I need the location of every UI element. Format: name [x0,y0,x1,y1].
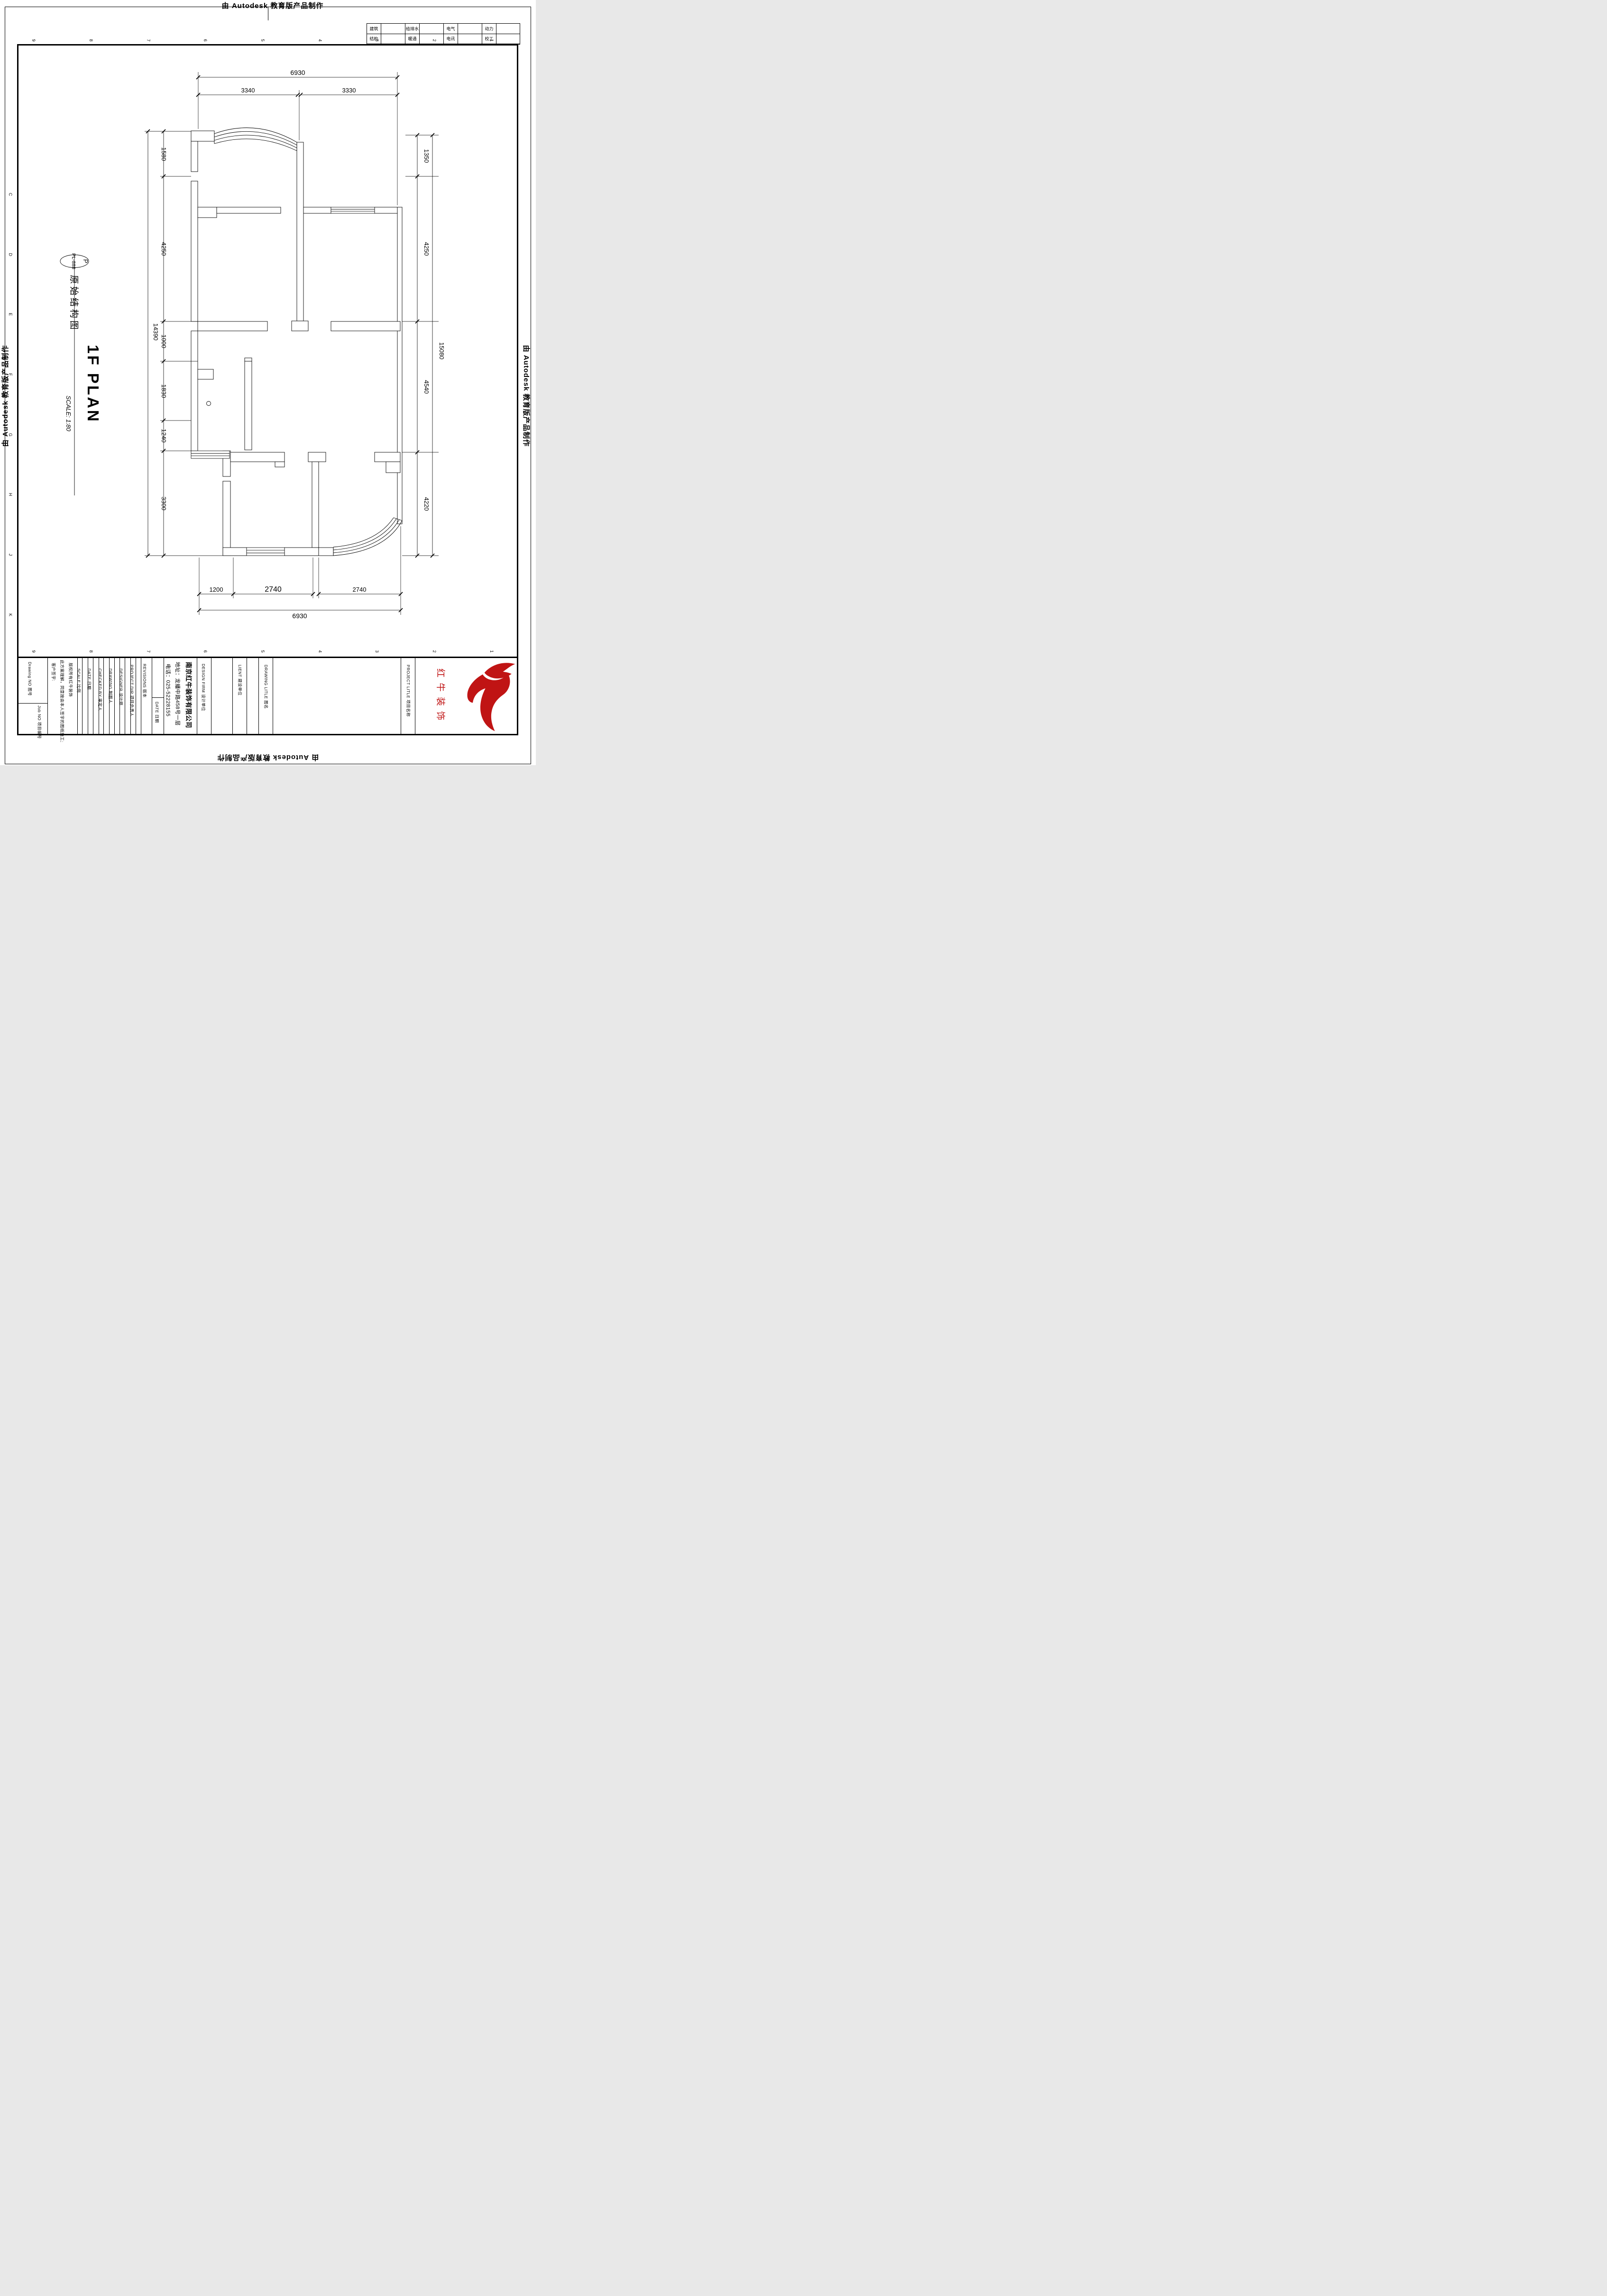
floor-plan-canvas: 6930 3340 3330 1200 2740 2740 6930 1580 … [0,0,536,765]
bull-body [467,674,510,732]
dim-label: 4540 [423,380,430,394]
tb-subdivider [18,703,47,704]
tb-divider [232,658,233,735]
plumbing-symbol [207,402,211,406]
dim-ticks [146,75,434,612]
tb-field-label-scale: SCALE 比例 [76,668,82,693]
dim-label: 4250 [423,242,430,256]
tb-field-label-date: DATE 日期 [86,668,92,690]
bay-arc [214,128,297,142]
window [331,207,375,213]
tb-client-label: LIENT 建设单位 [237,665,243,695]
tb-agreement-text: 此方案理解，同意按由本人签字的图纸施工; [59,660,65,742]
tb-divider [197,658,197,735]
wall-interior-vertical [312,462,319,548]
tb-job-no-label: Job NO 项目编号 [37,705,42,739]
wall-interior-horizontal [375,452,400,462]
tb-divider [401,658,401,735]
dim-label: 1000 [160,335,167,348]
drawing-sheet: 由 Autodesk 教育版产品制作 由 Autodesk 教育版产品制作 由 … [0,0,536,765]
dim-label: 15080 [438,342,445,359]
tb-company-name: 南京红牛装饰有限公司 [184,662,194,728]
dim-label: 4250 [160,242,167,256]
wall-jog [245,358,252,361]
tb-company-phone: 电话：025-52228155 [165,664,172,716]
tb-divider [82,658,83,735]
dim-label: 1830 [160,384,167,398]
wall-jog [386,462,400,473]
plan-walls [191,131,402,556]
tb-company-address: 地址：龙蟠中路458号一层 [174,662,182,726]
wall-left [191,141,198,172]
tb-revisions-date-label: DATE 日期 [154,702,160,723]
wall-bottom [319,548,333,556]
dim-label: 1350 [423,149,430,163]
tb-field-label-checked-by: CHECKED BY 审定人 [97,668,103,711]
tb-divider [247,658,247,735]
dim-label: 2740 [353,586,367,593]
dim-label: 2740 [265,585,282,594]
tb-drawing-title-label: DRAWING LITLE 图名 [263,665,269,709]
wall-interior-horizontal [217,207,281,213]
wall-interior-horizontal [198,321,267,331]
dim-label: 4220 [423,497,430,511]
wall-left [191,331,198,451]
dim-label: 6930 [290,69,305,76]
tb-subdivider [152,697,164,698]
wall-pier [198,207,217,218]
tb-divider [152,658,152,735]
drawing-title-en: 1F PLAN [84,345,102,423]
wall-pier [191,131,214,141]
wall-right [397,207,402,524]
tb-field-label-project-dir: PROJECT DIR 项目负责人 [129,665,135,717]
wall-column [308,452,326,462]
dim-label: 14390 [152,323,159,340]
wall-interior-horizontal [303,207,331,213]
red-bull-logo-glyph [457,661,516,733]
wall-interior-horizontal [230,452,285,462]
tb-field-label-designer: DESIGNER 设计师 [118,668,124,705]
tb-divider [211,658,211,735]
drawing-title-cn: 原始结构图 [69,275,79,332]
dim-label: 1580 [160,147,167,161]
wall-left-lower [223,481,230,556]
wall-column [292,321,308,331]
tb-divider [93,658,93,735]
bubble-letter: P [82,259,89,264]
bay-arc [333,521,402,556]
dim-label: 1240 [160,429,167,443]
plan-windows [191,207,375,556]
bull-horn [485,663,515,678]
tb-field-label-drawing: DRAWING 制图人 [108,668,113,704]
wall-left [191,181,198,321]
logo-text: 红牛装饰 [435,668,448,725]
bubble-code: PL-888 [71,253,76,269]
tb-drawing-no-label: Drawing NO 图号 [27,662,33,696]
tb-copyright-text: 版权所有红牛装饰 [68,663,73,697]
dim-extension-lines [145,72,439,615]
drawing-title-group: P PL-888 原始结构图 1F PLAN SCALE: 1:80 [60,253,102,495]
tb-project-title-label: PROJECT LITLE 项目名称 [405,665,411,717]
bay-arc [214,131,297,145]
wall-pier [198,369,213,379]
tb-divider [125,658,125,735]
wall-interior-horizontal [375,207,397,213]
tb-divider [47,658,48,735]
dim-label: 3330 [342,87,356,94]
dim-label: 6930 [292,612,307,620]
window [191,451,230,458]
bay-arc [214,135,297,148]
wall-jog [275,462,285,467]
tb-divider [164,658,164,735]
tb-divider [141,658,141,735]
bay-window-arcs [214,128,402,556]
bay-arc-caps [333,518,402,556]
window [247,548,285,556]
dim-lines [148,77,432,610]
wall-bottom [223,548,247,556]
tb-divider [258,658,259,735]
dim-label: 1200 [210,586,223,593]
tb-divider [273,658,273,735]
tb-divider [114,658,115,735]
tb-revisions-label: REVISIONS 版本 [142,664,147,698]
tb-divider [415,658,415,735]
drawing-scale: SCALE: 1:80 [65,395,72,431]
bay-arc [214,139,297,151]
dim-label: 3300 [160,497,167,511]
wall-interior-horizontal [331,321,400,331]
dim-label: 3340 [241,87,255,94]
title-block: Drawing NO 图号 Job NO 项目编号 客户签字: 此方案理解，同意… [18,657,518,735]
tb-design-firm-label: DESIGN FIRM 设计单位 [201,664,206,711]
tb-divider [103,658,104,735]
tb-divider [136,658,136,735]
wall-bottom [285,548,319,556]
wall-interior-vertical [245,361,252,450]
wall-interior-vertical [297,142,303,321]
tb-client-sign-label: 客户签字: [51,663,56,681]
